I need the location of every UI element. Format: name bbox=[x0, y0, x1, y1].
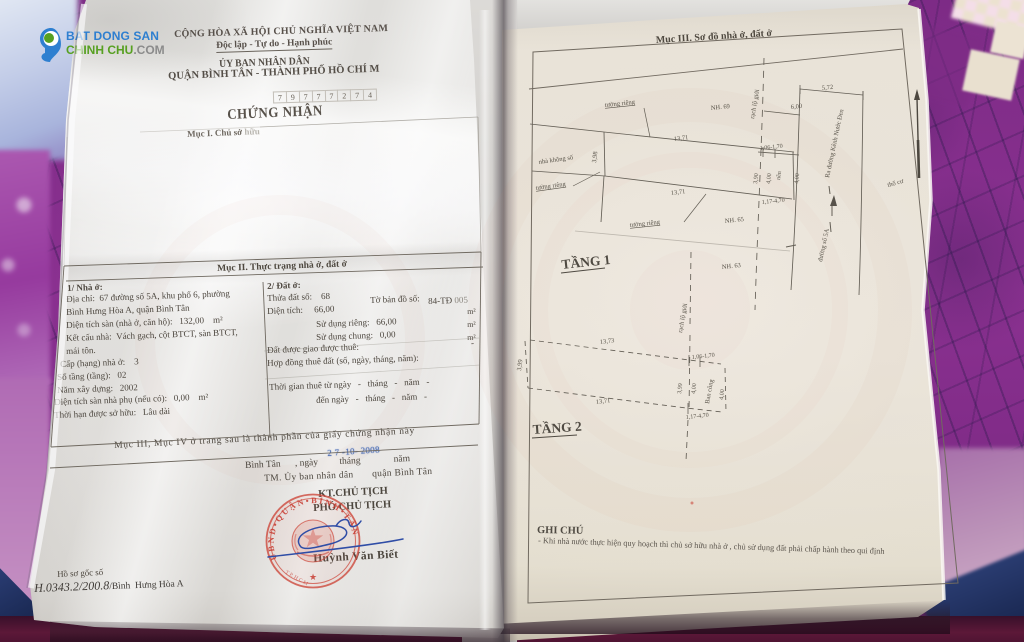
svg-text:13,71: 13,71 bbox=[595, 397, 610, 406]
svg-text:4,00: 4,00 bbox=[691, 383, 698, 394]
svg-text:thổ cư: thổ cư bbox=[887, 178, 905, 189]
svg-text:NH. 65: NH. 65 bbox=[724, 216, 744, 225]
svg-text:TẦNG 2: TẦNG 2 bbox=[532, 419, 582, 437]
svg-text:tường riêng: tường riêng bbox=[535, 181, 567, 192]
svg-text:đường số 5A: đường số 5A bbox=[817, 228, 831, 263]
svg-text:6,00: 6,00 bbox=[790, 103, 802, 111]
svg-text:Mục III. Sơ đồ nhà ở, đất ở: Mục III. Sơ đồ nhà ở, đất ở bbox=[656, 28, 773, 46]
svg-text:TẦNG 1: TẦNG 1 bbox=[561, 252, 612, 272]
svg-text:3,90: 3,90 bbox=[753, 173, 760, 184]
svg-text:3,99: 3,99 bbox=[516, 359, 524, 371]
svg-text:nền: nền bbox=[775, 171, 783, 180]
svg-text:5,72: 5,72 bbox=[821, 84, 833, 92]
svg-text:tường riêng: tường riêng bbox=[604, 99, 636, 109]
svg-text:NH. 69: NH. 69 bbox=[710, 103, 730, 112]
svg-text:4,00: 4,00 bbox=[719, 389, 726, 400]
svg-text:1,17-4,70: 1,17-4,70 bbox=[762, 198, 786, 206]
svg-text:13,71: 13,71 bbox=[670, 188, 685, 197]
svg-text:GHI CHÚ: GHI CHÚ bbox=[537, 524, 584, 537]
svg-text:3,98: 3,98 bbox=[591, 151, 599, 163]
svg-text:- Khi nhà nước thực hiện quy h: - Khi nhà nước thực hiện quy hoạch thì c… bbox=[538, 536, 886, 556]
svg-text:4,00: 4,00 bbox=[766, 173, 773, 184]
svg-text:rạch lộ giới: rạch lộ giới bbox=[677, 303, 689, 334]
svg-text:3,99: 3,99 bbox=[677, 383, 684, 394]
svg-text:nhà không số: nhà không số bbox=[538, 154, 574, 166]
svg-text:NH. 63: NH. 63 bbox=[721, 262, 741, 271]
svg-text:1,06-1,70: 1,06-1,70 bbox=[692, 353, 716, 361]
svg-text:rạch lộ giới: rạch lộ giới bbox=[749, 89, 761, 120]
svg-text:13,73: 13,73 bbox=[599, 337, 614, 346]
svg-text:13,71: 13,71 bbox=[673, 134, 688, 143]
svg-text:Ra đường Kênh Nước Đen: Ra đường Kênh Nước Đen bbox=[824, 108, 846, 179]
svg-text:Ban công: Ban công bbox=[704, 378, 715, 404]
svg-text:1,17-4,70: 1,17-4,70 bbox=[686, 413, 710, 421]
svg-text:tường riêng: tường riêng bbox=[629, 219, 661, 229]
svg-text:4,00: 4,00 bbox=[794, 173, 801, 184]
